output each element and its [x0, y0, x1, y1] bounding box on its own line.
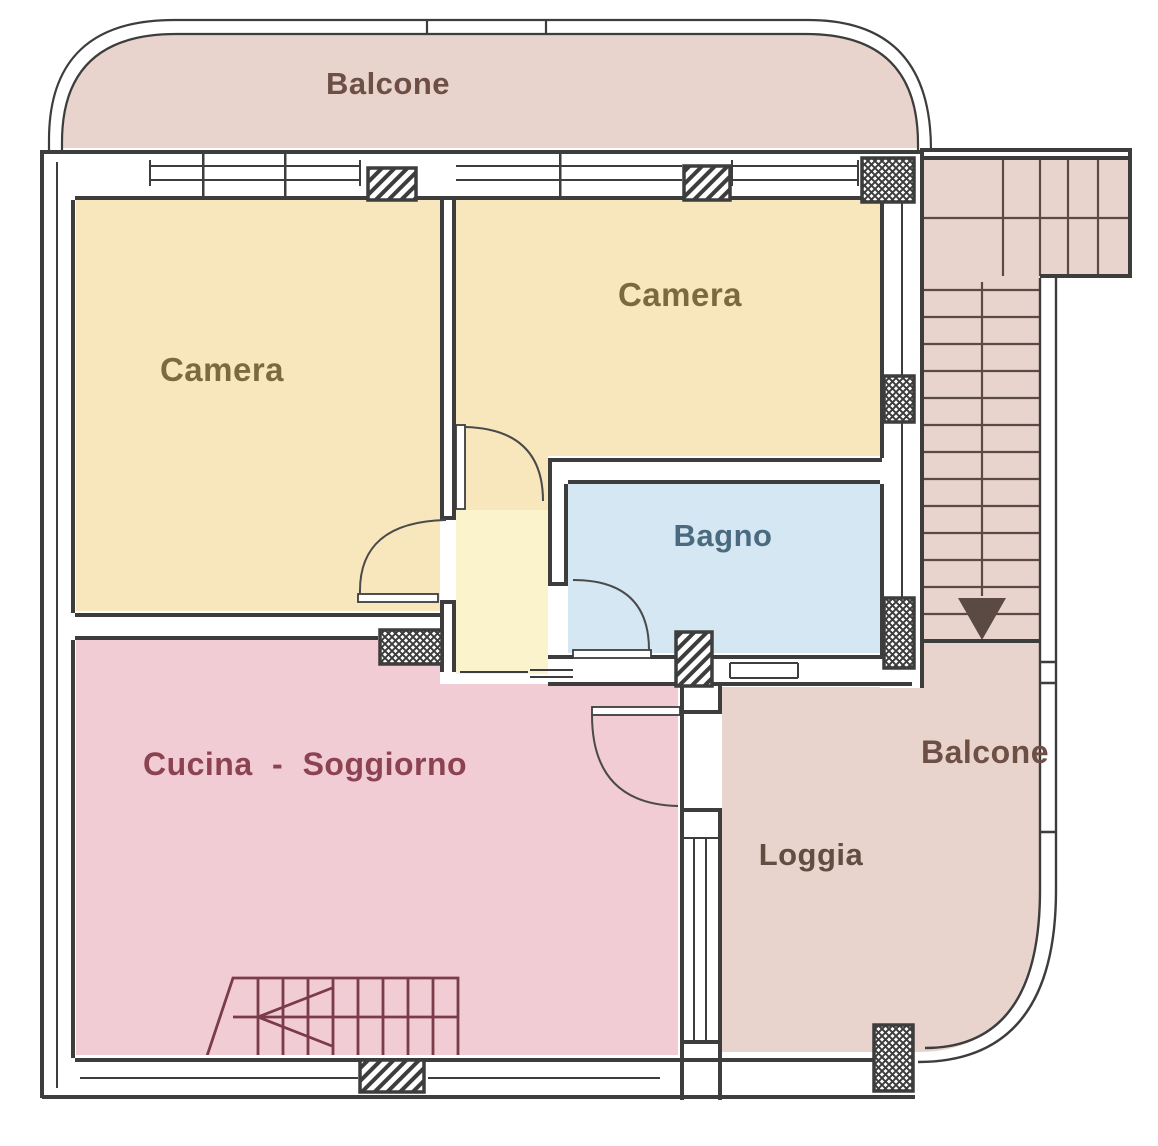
- room-balcone-top: [62, 34, 918, 150]
- column-top-1: [368, 168, 416, 200]
- room-label-balcone-top: Balcone: [326, 66, 450, 101]
- floor-plan-page: Balcone Camera Camera Bagno Cucina - Sog…: [0, 0, 1158, 1146]
- column-kitchen: [380, 630, 442, 664]
- room-label-bagno: Bagno: [674, 518, 773, 553]
- door-leaf-camera-left: [358, 594, 438, 602]
- room-camera-left: [75, 200, 443, 618]
- room-label-loggia: Loggia: [759, 837, 864, 872]
- room-label-cucina-soggiorno: Cucina - Soggiorno: [143, 746, 467, 782]
- floor-plan: Balcone Camera Camera Bagno Cucina - Sog…: [0, 0, 1158, 1146]
- column-right-1: [884, 376, 914, 422]
- room-cucina-soggiorno: [75, 640, 680, 1058]
- hallway: [456, 510, 548, 674]
- room-label-balcone-right: Balcone: [921, 734, 1049, 770]
- column-right-2: [884, 598, 914, 668]
- room-label-camera-left: Camera: [160, 351, 284, 388]
- door-leaf-cucina-loggia: [592, 707, 680, 715]
- column-bottom-1: [360, 1060, 424, 1092]
- column-bagno-loggia: [676, 632, 712, 686]
- door-leaf-camera-right: [456, 425, 465, 509]
- column-bottom-2: [874, 1025, 913, 1091]
- room-label-camera-right: Camera: [618, 276, 742, 313]
- column-top-2: [684, 166, 730, 200]
- room-bagno: [568, 482, 880, 658]
- door-leaf-bagno: [573, 650, 651, 658]
- column-top-3: [862, 158, 914, 202]
